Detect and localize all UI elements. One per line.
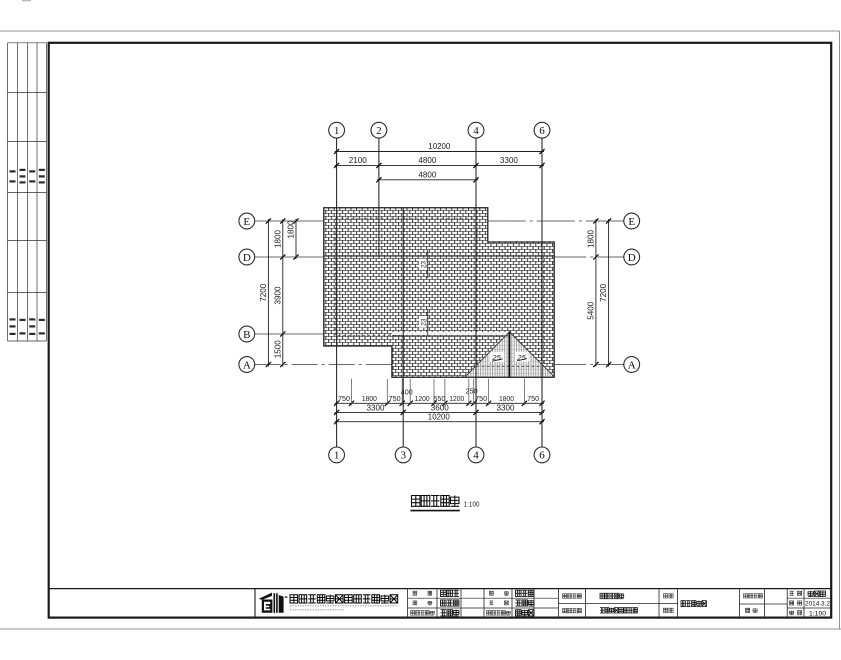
svg-text:1800: 1800 bbox=[273, 229, 282, 248]
svg-text:2: 2 bbox=[376, 125, 382, 137]
svg-text:1500: 1500 bbox=[273, 340, 282, 359]
svg-text:E: E bbox=[243, 216, 250, 228]
svg-text:23: 23 bbox=[420, 261, 427, 269]
svg-text:550: 550 bbox=[433, 396, 445, 403]
svg-text:3600: 3600 bbox=[431, 403, 450, 412]
svg-text:10200: 10200 bbox=[428, 142, 451, 151]
svg-text:6: 6 bbox=[539, 450, 545, 462]
svg-text:7200: 7200 bbox=[259, 283, 268, 302]
svg-text:23: 23 bbox=[420, 318, 427, 326]
svg-text:1:100: 1:100 bbox=[464, 501, 480, 508]
svg-text:750: 750 bbox=[389, 396, 401, 403]
svg-text:2100: 2100 bbox=[349, 156, 368, 165]
svg-text:A: A bbox=[628, 359, 636, 371]
svg-text:6: 6 bbox=[539, 125, 545, 137]
svg-text:D: D bbox=[243, 252, 251, 264]
svg-text:1: 1 bbox=[334, 450, 340, 462]
svg-text:D: D bbox=[628, 252, 636, 264]
svg-text:750: 750 bbox=[338, 396, 350, 403]
svg-text:750: 750 bbox=[475, 396, 487, 403]
svg-text:4800: 4800 bbox=[418, 170, 437, 179]
svg-text:1200: 1200 bbox=[449, 396, 464, 403]
svg-text:3300: 3300 bbox=[500, 156, 519, 165]
svg-text:1200: 1200 bbox=[415, 396, 430, 403]
svg-text:B: B bbox=[243, 329, 250, 341]
svg-text:3300: 3300 bbox=[497, 403, 516, 412]
svg-text:1: 1 bbox=[334, 125, 340, 137]
svg-text:5400: 5400 bbox=[587, 301, 596, 320]
svg-text:400: 400 bbox=[401, 390, 413, 397]
svg-text:4800: 4800 bbox=[418, 156, 437, 165]
svg-text:3900: 3900 bbox=[273, 286, 282, 305]
svg-text:2014.3.2: 2014.3.2 bbox=[805, 601, 830, 608]
svg-text:3: 3 bbox=[400, 450, 406, 462]
svg-text:250: 250 bbox=[466, 389, 478, 396]
svg-text:4: 4 bbox=[473, 450, 479, 462]
svg-text:10200: 10200 bbox=[428, 413, 451, 422]
svg-text:1:100: 1:100 bbox=[809, 610, 826, 617]
svg-text:1800: 1800 bbox=[287, 220, 296, 239]
svg-text:1800: 1800 bbox=[362, 396, 377, 403]
svg-text:3300: 3300 bbox=[367, 403, 386, 412]
svg-text:750: 750 bbox=[527, 396, 539, 403]
svg-text:4: 4 bbox=[473, 125, 479, 137]
svg-text:1800: 1800 bbox=[587, 229, 596, 248]
svg-text:E: E bbox=[628, 216, 635, 228]
svg-text:1800: 1800 bbox=[499, 396, 514, 403]
svg-text:7200: 7200 bbox=[599, 283, 608, 302]
svg-text:A: A bbox=[243, 359, 251, 371]
